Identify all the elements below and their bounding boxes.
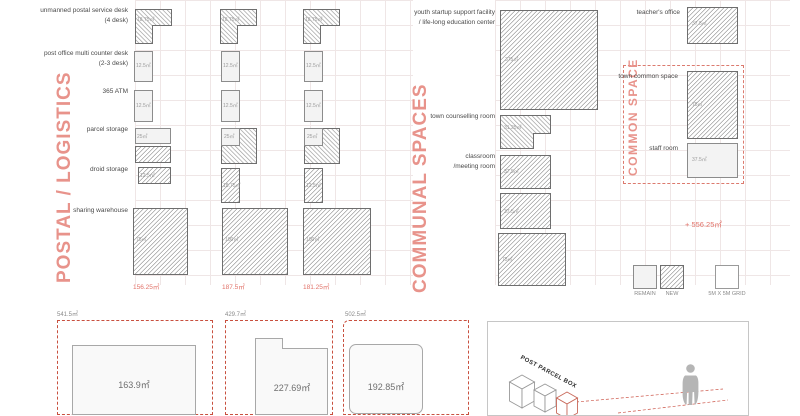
area-label: 12.5㎡ (306, 62, 321, 69)
column-header-medium: MEDIUM 3 DONG (219, 0, 281, 1)
hatched-l-shape (501, 116, 551, 149)
label-staff-room: staff room (560, 144, 678, 154)
column-total: 181.25㎡ (303, 281, 329, 291)
area-label: 12.5㎡ (140, 172, 155, 179)
row-label-unmanned-desk: unmanned postal service desk (4 desk) (0, 6, 128, 26)
hatched-l-shape (221, 10, 257, 44)
plan2-building-footprint (255, 338, 329, 415)
footprint-shape (256, 339, 328, 415)
area-label: 12.5㎡ (136, 102, 151, 109)
area-label: 75㎡ (692, 101, 703, 108)
unmanned-desk-shape-col3 (303, 9, 341, 45)
area-label: 12.5㎡ (306, 182, 321, 189)
plan1-area-label: 163.9㎡ (72, 378, 196, 391)
column-header-large: LARGE 4 DONG (301, 0, 359, 1)
area-label: 18.75㎡ (137, 16, 155, 23)
parcel-cube-small-red-icon (557, 392, 578, 415)
area-label: 25㎡ (137, 133, 148, 140)
label-classroom: classroom /meeting room (367, 152, 495, 172)
parcel-cube-large-icon (510, 375, 535, 408)
communal-total: + 556.25㎡ (685, 219, 722, 230)
area-label: 25㎡ (307, 133, 318, 140)
label-counselling-room: town counselling room (367, 112, 495, 122)
plan2-total-label: 429.7㎡ (225, 309, 246, 318)
row-label-counter-desk: post office multi counter desk (2-3 desk… (0, 49, 128, 69)
area-label: 18.75㎡ (222, 16, 240, 23)
area-label: 37.5㎡ (692, 20, 707, 27)
label-teachers-office: teacher's office (560, 8, 680, 18)
row-label-atm: 365 ATM (0, 87, 128, 97)
legend-grid-label: 5M X 5M GRID (700, 291, 754, 297)
parcel-box-illustration (488, 322, 748, 415)
area-label: 37.5㎡ (504, 168, 519, 175)
area-label: 37.5㎡ (692, 156, 707, 163)
area-label: 12.5㎡ (306, 102, 321, 109)
post-parcel-box-panel: POST PARCEL BOX (487, 321, 749, 416)
legend-remain-swatch (633, 265, 657, 289)
area-label: 75㎡ (136, 236, 147, 243)
unmanned-desk-shape-col2 (220, 9, 258, 45)
area-label: 18.75㎡ (223, 182, 241, 189)
area-label: 100㎡ (225, 236, 238, 243)
row-label-droid-storage: droid storage (0, 165, 128, 175)
legend-new-swatch (660, 265, 684, 289)
plan3-building-footprint (349, 344, 423, 414)
unmanned-desk-shape-col1 (135, 9, 173, 45)
person-silhouette (683, 364, 699, 405)
label-town-common-space: town common space (560, 72, 678, 82)
area-label: 37.5㎡ (504, 208, 519, 215)
hatched-l-shape (136, 10, 172, 44)
area-label: 12.5㎡ (223, 102, 238, 109)
area-label: 25㎡ (224, 133, 235, 140)
column-total: 187.5㎡ (222, 281, 245, 291)
plan2-area-label: 227.69㎡ (255, 381, 329, 394)
area-label: 75㎡ (502, 256, 513, 263)
architecture-program-diagram: { "colors": {"accent_salmon": "#e8938b",… (0, 0, 800, 408)
area-label: 18.75㎡ (305, 16, 323, 23)
row-label-parcel-storage: parcel storage (0, 125, 128, 135)
hatched-l-shape (304, 10, 340, 44)
parcel-storage-new-col1 (135, 146, 171, 163)
area-label: 100㎡ (306, 236, 319, 243)
area-label: 31.25㎡ (504, 124, 522, 131)
plan1-total-label: 541.5㎡ (57, 309, 78, 318)
legend-grid-swatch (715, 265, 739, 289)
postal-section-title: POSTAL / LOGISTICS (54, 83, 76, 283)
area-label: 12.5㎡ (223, 62, 238, 69)
area-label: 12.5㎡ (136, 62, 151, 69)
area-label: 375㎡ (505, 56, 518, 63)
plan3-total-label: 502.5㎡ (345, 309, 366, 318)
column-total: 156.25㎡ (133, 281, 159, 291)
label-youth-facility: youth startup support facility / life-lo… (367, 8, 495, 28)
plan3-area-label: 192.85㎡ (349, 380, 423, 393)
column-header-small: SMALL 2 DONG (133, 0, 191, 1)
row-label-sharing-warehouse: sharing warehouse (0, 206, 128, 216)
ground-dash-line (618, 400, 728, 413)
common-section-title: COMMON SPACE (626, 74, 640, 176)
ground-dash-line (576, 389, 723, 402)
counselling-room-shape (500, 115, 552, 150)
legend-new-label: NEW (655, 291, 689, 297)
